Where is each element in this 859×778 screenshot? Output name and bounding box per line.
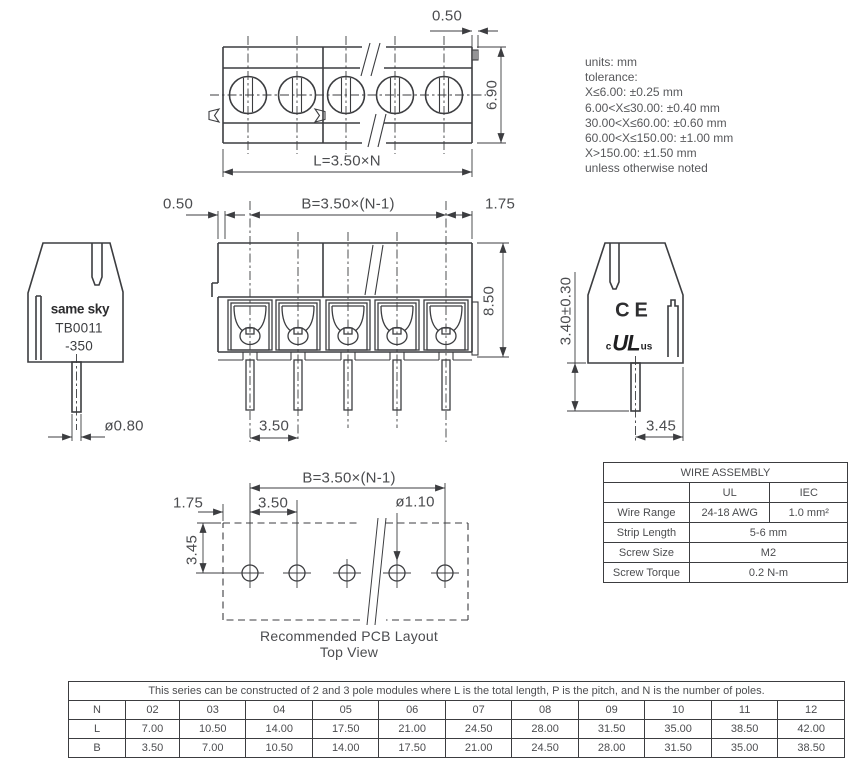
strip-length-label: Strip Length — [604, 523, 690, 543]
l-value: 10.50 — [180, 720, 246, 739]
wire-range-ul-value: 24-18 AWG — [689, 503, 770, 523]
note-tolerance: tolerance: — [585, 70, 733, 85]
b-value: 24.50 — [512, 739, 578, 758]
n-value: 07 — [445, 701, 511, 720]
n-value: 02 — [126, 701, 180, 720]
pcb-caption-line1: Recommended PCB Layout — [260, 628, 438, 644]
brand-logo: same sky — [51, 302, 109, 317]
row-l-label: L — [69, 720, 126, 739]
series-dimension-table: This series can be constructed of 2 and … — [68, 681, 845, 758]
note-footer: unless otherwise noted — [585, 161, 733, 176]
screw-torque-label: Screw Torque — [604, 563, 690, 583]
note-tol-1: X≤6.00: ±0.25 mm — [585, 85, 733, 100]
n-value: 06 — [379, 701, 445, 720]
series-note: This series can be constructed of 2 and … — [69, 682, 845, 701]
ul-c-label: c — [606, 343, 612, 353]
l-value: 28.00 — [512, 720, 578, 739]
note-units: units: mm — [585, 55, 733, 70]
top-view-height-dimension: 6.90 — [484, 80, 501, 110]
l-value: 35.00 — [645, 720, 711, 739]
pcb-pitch-dimension: 3.50 — [258, 495, 288, 512]
pin-length-dimension: 3.40±0.30 — [558, 277, 575, 345]
wire-range-iec-value: 1.0 mm² — [770, 503, 848, 523]
note-tol-4: 60.00<X≤150.00: ±1.00 mm — [585, 131, 733, 146]
pcb-caption-line2: Top View — [320, 644, 378, 660]
wire-table-title: WIRE ASSEMBLY — [604, 463, 848, 483]
n-value: 09 — [578, 701, 644, 720]
cul-us-recognized-mark: c UL us — [606, 334, 653, 353]
n-value: 08 — [512, 701, 578, 720]
front-view-pitch-dimension: 3.50 — [259, 418, 289, 435]
pcb-row-offset-dimension: 3.45 — [184, 535, 201, 565]
ce-mark: CE — [615, 300, 653, 323]
n-value: 04 — [246, 701, 312, 720]
n-value: 11 — [711, 701, 777, 720]
l-value: 17.50 — [312, 720, 378, 739]
top-view-length-dimension: L=3.50×N — [313, 153, 381, 170]
b-value: 38.50 — [778, 739, 845, 758]
b-value: 28.00 — [578, 739, 644, 758]
pcb-margin-dimension: 1.75 — [173, 495, 203, 512]
b-value: 14.00 — [312, 739, 378, 758]
b-value: 10.50 — [246, 739, 312, 758]
b-value: 31.50 — [645, 739, 711, 758]
pcb-hole-diameter-dimension: ø1.10 — [395, 494, 434, 511]
b-value: 17.50 — [379, 739, 445, 758]
wire-table-col-ul: UL — [689, 483, 770, 503]
screw-size-label: Screw Size — [604, 543, 690, 563]
ul-us-label: us — [641, 343, 653, 353]
n-value: 03 — [180, 701, 246, 720]
table-row-l: L 7.00 10.50 14.00 17.50 21.00 24.50 28.… — [69, 720, 845, 739]
strip-length-value: 5-6 mm — [689, 523, 847, 543]
b-value: 21.00 — [445, 739, 511, 758]
b-value: 7.00 — [180, 739, 246, 758]
wire-table-col-iec: IEC — [770, 483, 848, 503]
b-value: 35.00 — [711, 739, 777, 758]
l-value: 38.50 — [711, 720, 777, 739]
front-view-height-dimension: 8.50 — [481, 286, 498, 316]
row-n-label: N — [69, 701, 126, 720]
row-b-label: B — [69, 739, 126, 758]
b-value: 3.50 — [126, 739, 180, 758]
front-view-linework — [186, 201, 509, 442]
wire-assembly-table: WIRE ASSEMBLY UL IEC Wire Range 24-18 AW… — [603, 462, 848, 583]
front-view-margin-dimension: 1.75 — [485, 196, 515, 213]
pcb-span-dimension: B=3.50×(N-1) — [302, 470, 395, 487]
ul-logo: UL — [612, 334, 639, 353]
tolerance-notes: units: mm tolerance: X≤6.00: ±0.25 mm 6.… — [585, 55, 733, 177]
table-row-n: N 02 03 04 05 06 07 08 09 10 11 12 — [69, 701, 845, 720]
note-tol-5: X>150.00: ±1.50 mm — [585, 146, 733, 161]
l-value: 14.00 — [246, 720, 312, 739]
l-value: 21.00 — [379, 720, 445, 739]
front-view-edge-dimension: 0.50 — [163, 196, 193, 213]
table-row-b: B 3.50 7.00 10.50 14.00 17.50 21.00 24.5… — [69, 739, 845, 758]
l-value: 31.50 — [578, 720, 644, 739]
n-value: 12 — [778, 701, 845, 720]
l-value: 7.00 — [126, 720, 180, 739]
wire-range-label: Wire Range — [604, 503, 690, 523]
pin-diameter-dimension: ø0.80 — [104, 418, 143, 435]
top-view-tab-dimension: 0.50 — [432, 8, 462, 25]
n-value: 10 — [645, 701, 711, 720]
part-number: TB0011 — [55, 321, 102, 336]
l-value: 24.50 — [445, 720, 511, 739]
pin-offset-dimension: 3.45 — [646, 418, 676, 435]
n-value: 05 — [312, 701, 378, 720]
wire-table-blank-cell — [604, 483, 690, 503]
note-tol-3: 30.00<X≤60.00: ±0.60 mm — [585, 116, 733, 131]
datasheet-drawing-page: units: mm tolerance: X≤6.00: ±0.25 mm 6.… — [0, 0, 859, 778]
part-number-suffix: -350 — [65, 339, 93, 354]
l-value: 42.00 — [778, 720, 845, 739]
screw-torque-value: 0.2 N-m — [689, 563, 847, 583]
note-tol-2: 6.00<X≤30.00: ±0.40 mm — [585, 101, 733, 116]
front-view-span-dimension: B=3.50×(N-1) — [301, 196, 394, 213]
screw-size-value: M2 — [689, 543, 847, 563]
